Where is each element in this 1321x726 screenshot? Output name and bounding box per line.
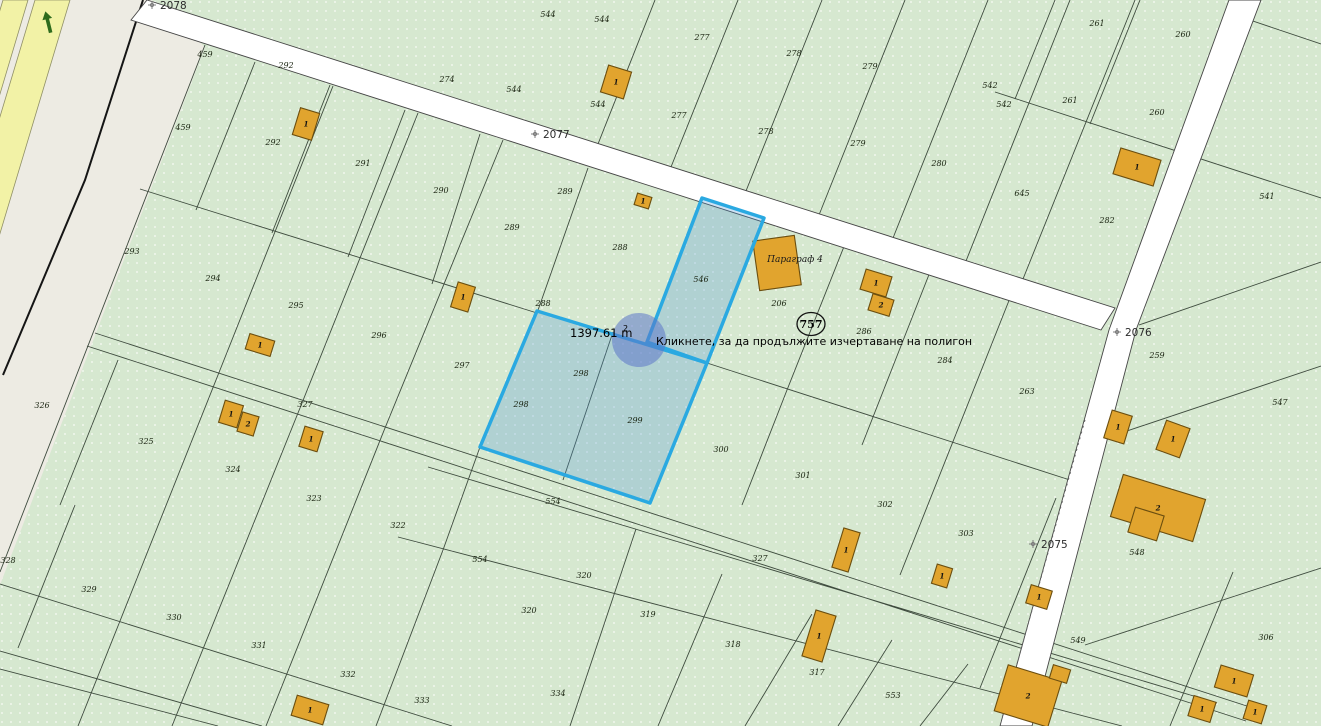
parcel-label: 206 (770, 299, 786, 308)
building-number: 1 (1232, 677, 1237, 686)
parcel-label: 318 (725, 640, 740, 649)
building-number: 1 (308, 706, 313, 715)
parcel-label: 322 (390, 521, 405, 530)
building-number: 1 (940, 572, 945, 581)
parcel-label: 274 (438, 75, 454, 84)
parcel-label: 261 (1061, 96, 1077, 105)
parcel-label: 320 (576, 571, 591, 580)
parcel-label: 546 (693, 275, 708, 284)
building-number: 2 (245, 420, 251, 429)
area-readout: 1397.61 m 2 (570, 324, 632, 340)
parcel-label: 542 (996, 100, 1011, 109)
building-number: 1 (1253, 708, 1258, 717)
building-number: 1 (614, 78, 619, 87)
parcel-label: 327 (752, 554, 768, 563)
parcel-label: 302 (877, 500, 892, 509)
parcel-label: 293 (123, 247, 139, 256)
parcel-label: 329 (81, 585, 96, 594)
parcel-label: 289 (556, 187, 572, 196)
parcel-label: 288 (534, 299, 550, 308)
building-number: 1 (1135, 163, 1140, 172)
building-number: 1 (309, 435, 314, 444)
building-number: 2 (1155, 504, 1161, 513)
parcel-label: 288 (611, 243, 627, 252)
parcel-label: 331 (251, 641, 266, 650)
road-marker-label: 2077 (543, 129, 570, 141)
parcel-label: 279 (861, 62, 877, 71)
parcel-label: 319 (640, 610, 655, 619)
building-number: 1 (258, 341, 263, 350)
parcel-label: 303 (958, 529, 973, 538)
parcel-label: 544 (506, 85, 521, 94)
parcel-label: 459 (196, 50, 212, 59)
parcel-label: 260 (1174, 30, 1190, 39)
parcel-label: 325 (138, 437, 153, 446)
parcel-label: 328 (0, 556, 15, 565)
parcel-label: 542 (982, 81, 997, 90)
building-number: 1 (1200, 705, 1205, 714)
parcel-label: 284 (936, 356, 952, 365)
parcel-label: 279 (849, 139, 865, 148)
parcel-label: 548 (1129, 548, 1144, 557)
parcel-label: 278 (785, 49, 801, 58)
parcel-label: 333 (414, 696, 429, 705)
building-number: 2 (878, 301, 884, 310)
parcel-label: 295 (287, 301, 303, 310)
parcel-label: 298 (512, 400, 528, 409)
parcel-label: 300 (713, 445, 728, 454)
parcel-label: 263 (1018, 387, 1034, 396)
parcel-label: 298 (572, 369, 588, 378)
parcel-label: 554 (472, 555, 487, 564)
road-marker-label: 2075 (1041, 539, 1068, 551)
building-number: 2 (1025, 692, 1031, 701)
draw-tooltip: Кликнете, за да продължите изчертаване н… (656, 335, 972, 348)
parcel-label: 260 (1148, 108, 1164, 117)
parcel-label: 323 (306, 494, 321, 503)
parcel-label: 549 (1070, 636, 1085, 645)
building-number: 1 (461, 293, 466, 302)
map-viewport[interactable]: 11111121112112111111121 2078207720762075… (0, 0, 1321, 726)
circle-757-label: 757 (800, 318, 823, 331)
parcel-label: 277 (670, 111, 687, 120)
building-number: 1 (304, 120, 309, 129)
building-number: 1 (641, 197, 646, 206)
parcel-label: 320 (521, 606, 536, 615)
parcel-label: 317 (809, 668, 825, 677)
parcel-label: 294 (204, 274, 220, 283)
parcel-label: 297 (453, 361, 470, 370)
area-unit-superscript: 2 (623, 324, 628, 333)
parcel-label: 334 (550, 689, 565, 698)
parcel-label: 327 (297, 400, 313, 409)
road-marker-label: 2076 (1125, 327, 1152, 339)
road-marker-label: 2078 (160, 0, 187, 12)
parcel-label: 544 (590, 100, 605, 109)
paragraph-4-label: Параграф 4 (766, 255, 823, 265)
building-number: 1 (844, 546, 849, 555)
parcel-label: 280 (930, 159, 946, 168)
building-number: 1 (1116, 423, 1121, 432)
parcel-label: 259 (1148, 351, 1164, 360)
parcel-label: 292 (277, 61, 293, 70)
parcel-label: 301 (795, 471, 810, 480)
parcel-label: 645 (1014, 189, 1029, 198)
parcel-label: 291 (354, 159, 370, 168)
parcel-label: 544 (594, 15, 609, 24)
parcel-label: 261 (1088, 19, 1104, 28)
building-number: 1 (1171, 435, 1176, 444)
parcel-label: 299 (626, 416, 642, 425)
building-number: 1 (874, 279, 879, 288)
building-number: 1 (1037, 593, 1042, 602)
parcel-label: 324 (225, 465, 240, 474)
parcel-label: 290 (432, 186, 448, 195)
building-number: 1 (229, 410, 234, 419)
parcel-label: 541 (1259, 192, 1274, 201)
parcel-label: 544 (540, 10, 555, 19)
parcel-label: 282 (1098, 216, 1114, 225)
parcel-label: 553 (885, 691, 900, 700)
parcel-label: 326 (34, 401, 49, 410)
parcel-label: 292 (264, 138, 280, 147)
parcel-label: 306 (1258, 633, 1273, 642)
parcel-label: 332 (340, 670, 355, 679)
parcel-label: 554 (545, 497, 560, 506)
parcel-label: 296 (370, 331, 386, 340)
parcel-label: 330 (166, 613, 181, 622)
building-number: 1 (817, 632, 822, 641)
parcel-label: 277 (693, 33, 710, 42)
parcel-label: 289 (503, 223, 519, 232)
parcel-label: 547 (1272, 398, 1288, 407)
parcel-label: 459 (174, 123, 190, 132)
parcel-label: 278 (757, 127, 773, 136)
map-canvas[interactable]: 11111121112112111111121 2078207720762075… (0, 0, 1321, 726)
